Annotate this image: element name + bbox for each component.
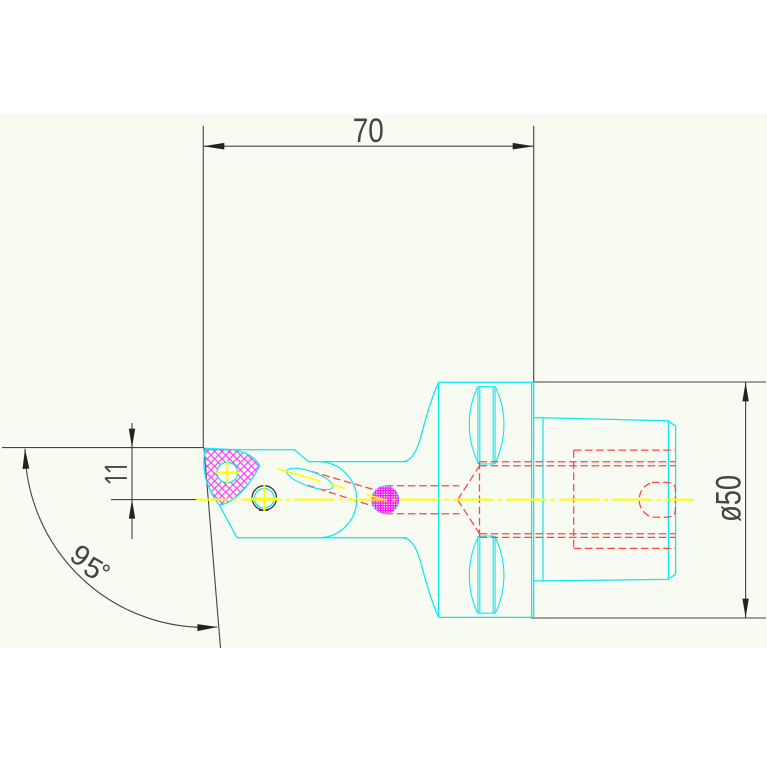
svg-text:ø50: ø50: [709, 475, 749, 522]
svg-text:70: 70: [353, 112, 384, 150]
